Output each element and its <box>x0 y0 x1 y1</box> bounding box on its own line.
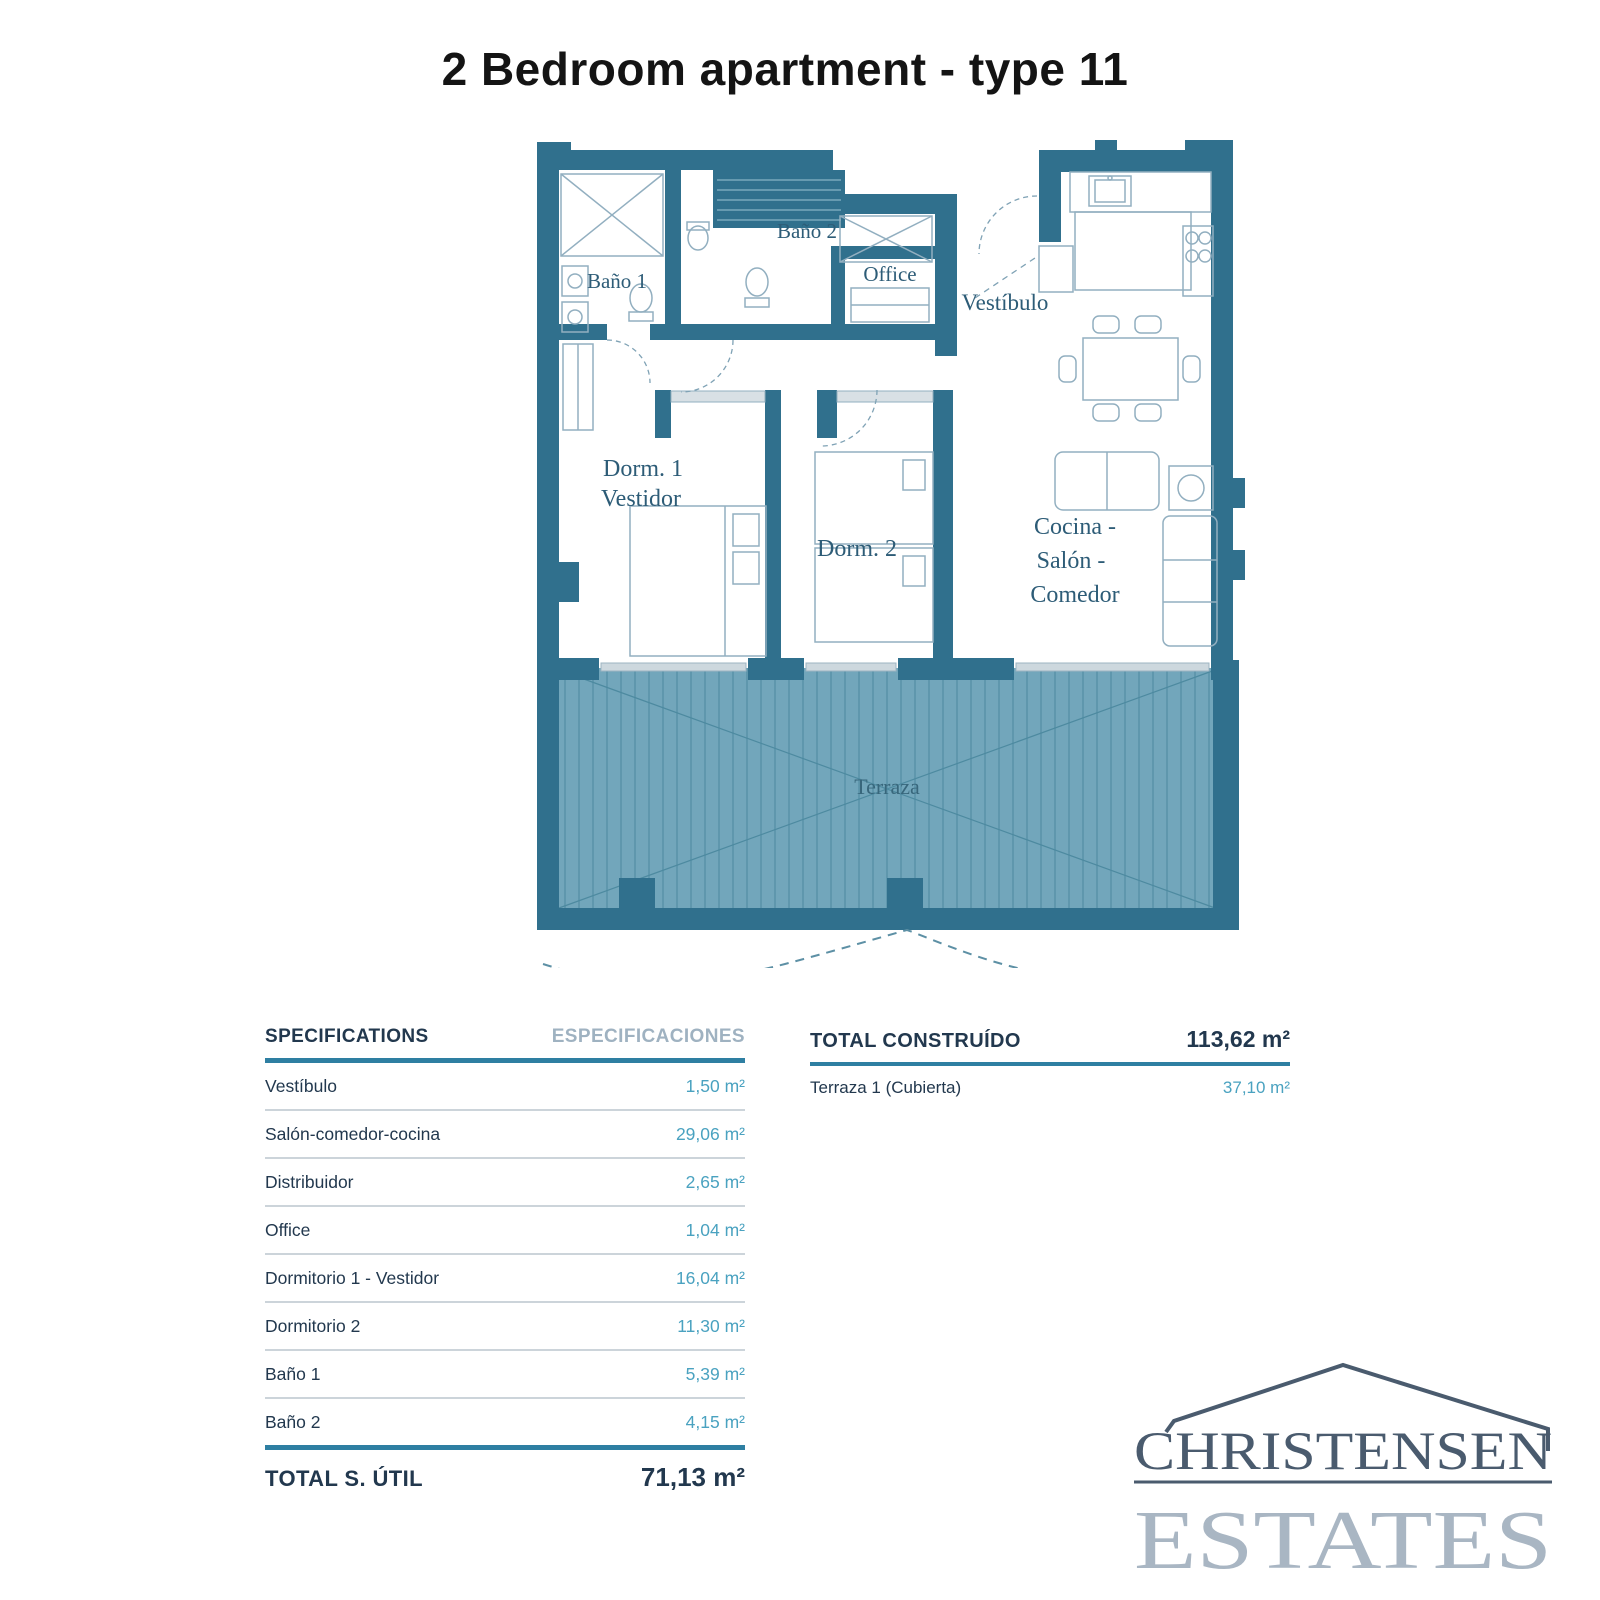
total-construido-label: TOTAL CONSTRUÍDO <box>810 1030 1021 1053</box>
terraza-row: Terraza 1 (Cubierta) 37,10 m² <box>810 1066 1290 1098</box>
total-construido-header: TOTAL CONSTRUÍDO 113,62 m² <box>810 1026 1290 1066</box>
spec-value: 16,04 m² <box>676 1268 745 1289</box>
spec-row: Baño 1 5,39 m² <box>265 1349 745 1397</box>
label-terraza: Terraza <box>854 774 920 799</box>
spec-row: Dormitorio 1 - Vestidor 16,04 m² <box>265 1253 745 1301</box>
spec-label: Dormitorio 1 - Vestidor <box>265 1268 439 1289</box>
specifications-header: SPECIFICATIONS ESPECIFICACIONES <box>265 1026 745 1063</box>
logo-drawing: CHRISTENSEN ESTATES <box>1100 1335 1580 1600</box>
logo-subtitle: ESTATES <box>1134 1494 1552 1587</box>
spec-total-label: TOTAL S. ÚTIL <box>265 1466 423 1492</box>
label-salon: Salón - <box>1037 548 1106 574</box>
spec-label: Distribuidor <box>265 1172 354 1193</box>
specifications-table: SPECIFICATIONS ESPECIFICACIONES Vestíbul… <box>265 1026 745 1493</box>
label-cocina: Cocina - <box>1034 514 1116 540</box>
logo-name: CHRISTENSEN <box>1134 1421 1552 1481</box>
spec-value: 1,04 m² <box>686 1220 745 1241</box>
spec-label: Office <box>265 1220 310 1241</box>
spec-row: Vestíbulo 1,50 m² <box>265 1063 745 1109</box>
spec-value: 1,50 m² <box>686 1076 745 1097</box>
spec-value: 5,39 m² <box>686 1364 745 1385</box>
label-vestidor: Vestidor <box>601 486 681 512</box>
spec-row: Baño 2 4,15 m² <box>265 1397 745 1445</box>
label-bano1: Baño 1 <box>587 269 647 293</box>
spec-label: Baño 2 <box>265 1412 320 1433</box>
spec-row: Office 1,04 m² <box>265 1205 745 1253</box>
label-dorm1: Dorm. 1 <box>603 456 683 482</box>
spec-value: 2,65 m² <box>686 1172 745 1193</box>
spec-row: Distribuidor 2,65 m² <box>265 1157 745 1205</box>
floor-plan: Terraza <box>535 138 1255 968</box>
total-construido-table: TOTAL CONSTRUÍDO 113,62 m² Terraza 1 (Cu… <box>810 1026 1290 1098</box>
spec-row: Salón-comedor-cocina 29,06 m² <box>265 1109 745 1157</box>
spec-total-row: TOTAL S. ÚTIL 71,13 m² <box>265 1445 745 1493</box>
terraza-label: Terraza 1 (Cubierta) <box>810 1078 961 1098</box>
spec-label: Vestíbulo <box>265 1076 337 1097</box>
page-title: 2 Bedroom apartment - type 11 <box>0 42 1570 96</box>
spec-label: Dormitorio 2 <box>265 1316 360 1337</box>
terrace: Terraza <box>557 668 1217 910</box>
specifications-title-en: SPECIFICATIONS <box>265 1026 429 1048</box>
label-vestibulo: Vestíbulo <box>962 290 1049 315</box>
terraza-value: 37,10 m² <box>1223 1078 1290 1098</box>
spec-row: Dormitorio 2 11,30 m² <box>265 1301 745 1349</box>
spec-label: Baño 1 <box>265 1364 320 1385</box>
label-bano2: Baño 2 <box>777 219 837 243</box>
terrace-boundary-wave <box>543 930 1245 968</box>
floor-plan-drawing: Terraza <box>535 138 1255 968</box>
spec-value: 11,30 m² <box>677 1316 745 1337</box>
label-dorm2: Dorm. 2 <box>817 536 897 562</box>
apartment-floor <box>545 158 1227 670</box>
logo-christensen-estates: CHRISTENSEN ESTATES <box>1100 1335 1580 1600</box>
spec-label: Salón-comedor-cocina <box>265 1124 440 1145</box>
label-office: Office <box>863 262 916 286</box>
label-comedor: Comedor <box>1030 582 1119 608</box>
spec-value: 29,06 m² <box>676 1124 745 1145</box>
page: 2 Bedroom apartment - type 11 Terraza <box>0 0 1600 1600</box>
spec-total-value: 71,13 m² <box>641 1462 745 1493</box>
spec-value: 4,15 m² <box>686 1412 745 1433</box>
total-construido-value: 113,62 m² <box>1186 1026 1290 1053</box>
specifications-title-es: ESPECIFICACIONES <box>552 1026 745 1048</box>
